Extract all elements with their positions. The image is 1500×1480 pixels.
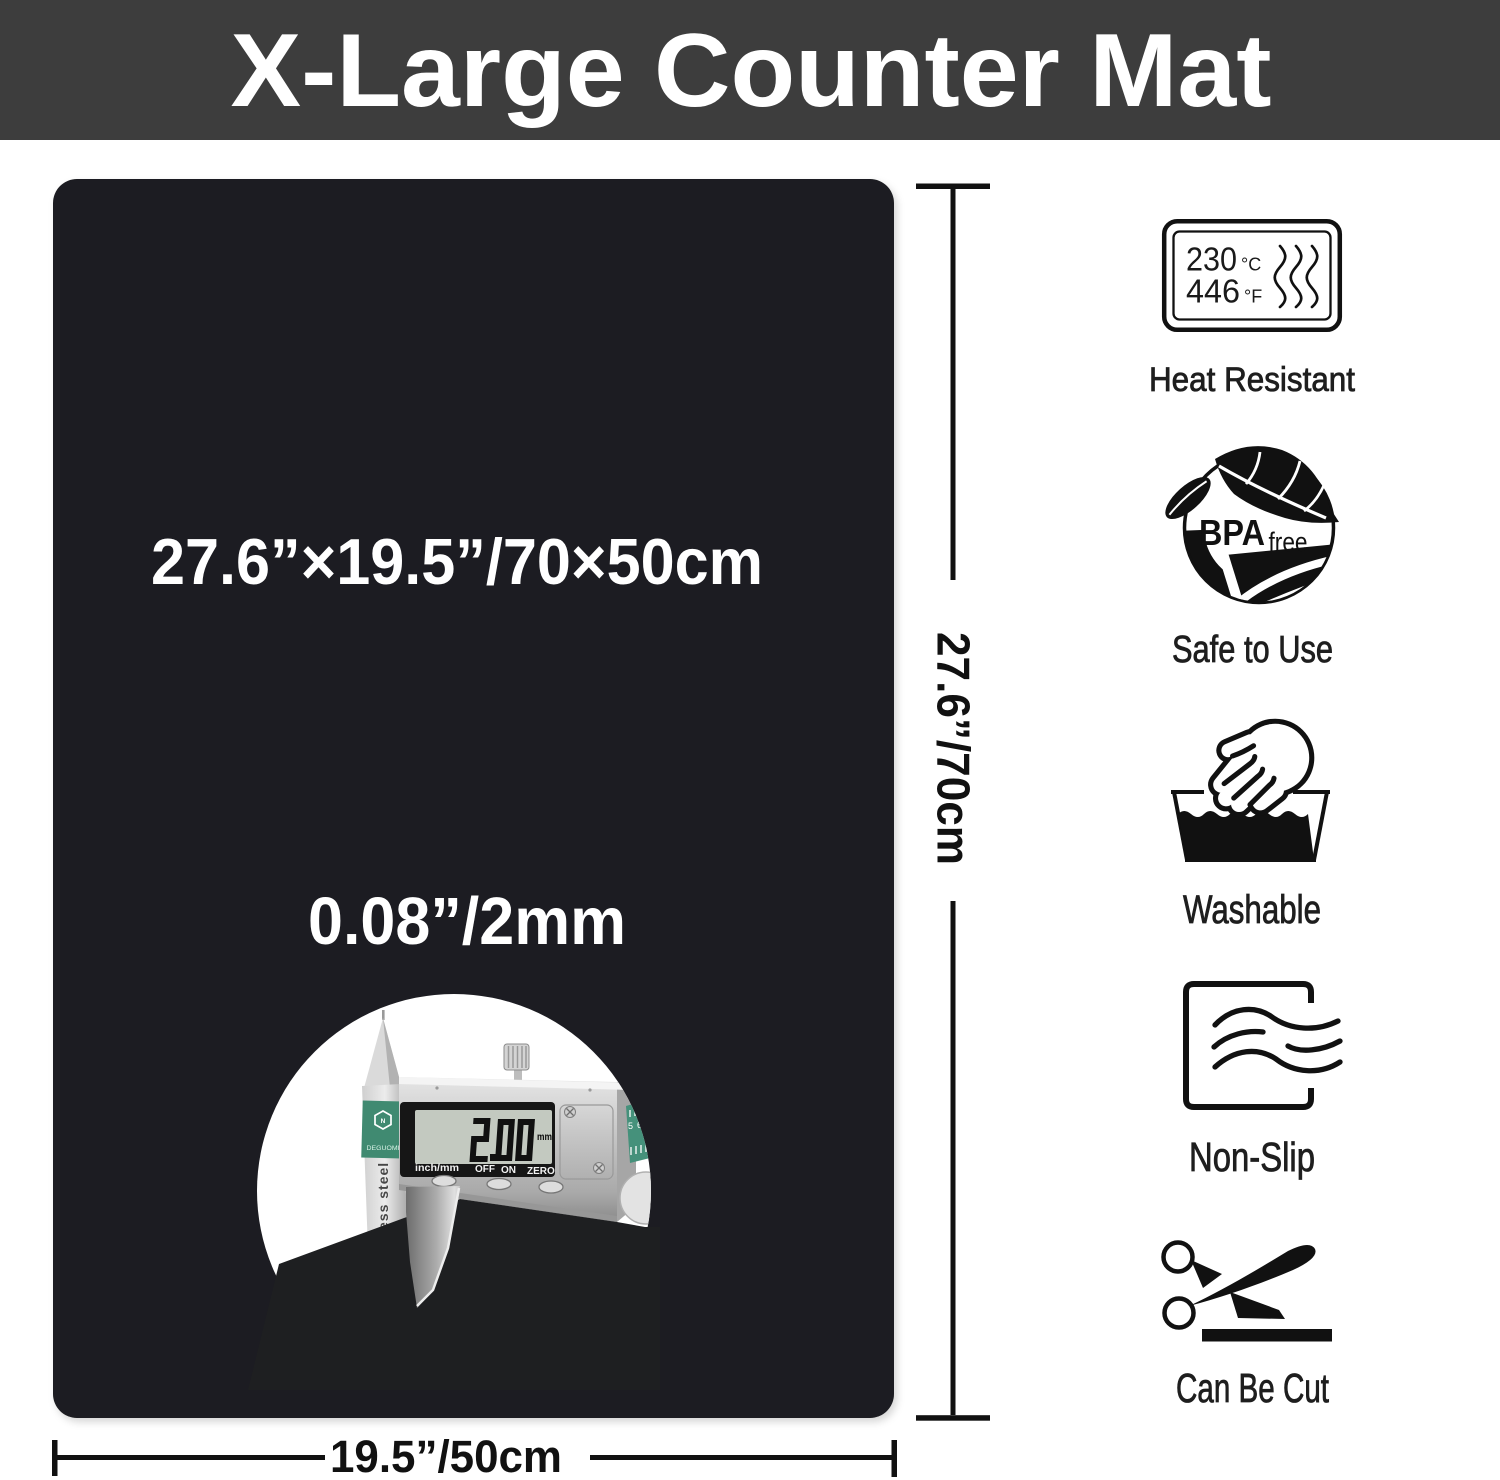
svg-text:Non-Slip: Non-Slip: [1189, 1134, 1315, 1180]
svg-text:BPA: BPA: [1199, 512, 1265, 553]
svg-text:inch/mm: inch/mm: [415, 1163, 459, 1174]
svg-text:Can Be Cut: Can Be Cut: [1176, 1365, 1329, 1411]
svg-text:19.5”/50cm: 19.5”/50cm: [330, 1431, 562, 1480]
svg-text:Washable: Washable: [1183, 888, 1321, 932]
svg-text:446: 446: [1186, 273, 1240, 310]
svg-text:mm: mm: [537, 1132, 552, 1143]
svg-text:0.08”/2mm: 0.08”/2mm: [308, 884, 626, 959]
svg-text:Safe to Use: Safe to Use: [1172, 629, 1333, 671]
svg-text:ess steel: ess steel: [375, 1162, 391, 1230]
svg-text:X-Large Counter Mat: X-Large Counter Mat: [231, 13, 1272, 129]
svg-text:5: 5: [628, 1121, 633, 1131]
svg-text:27.6”/70cm: 27.6”/70cm: [928, 632, 980, 865]
svg-text:OFF: OFF: [475, 1164, 495, 1175]
svg-text:ZERO: ZERO: [527, 1166, 555, 1177]
svg-text:free: free: [1269, 527, 1308, 557]
svg-text:N: N: [381, 1118, 386, 1125]
svg-text:27.6”×19.5”/70×50cm: 27.6”×19.5”/70×50cm: [151, 526, 763, 598]
svg-text:°C: °C: [1241, 255, 1261, 275]
svg-text:°F: °F: [1244, 287, 1262, 307]
svg-text:ON: ON: [501, 1165, 516, 1176]
svg-text:DEGUOMI: DEGUOMI: [367, 1146, 400, 1152]
svg-text:Heat Resistant: Heat Resistant: [1149, 361, 1356, 399]
